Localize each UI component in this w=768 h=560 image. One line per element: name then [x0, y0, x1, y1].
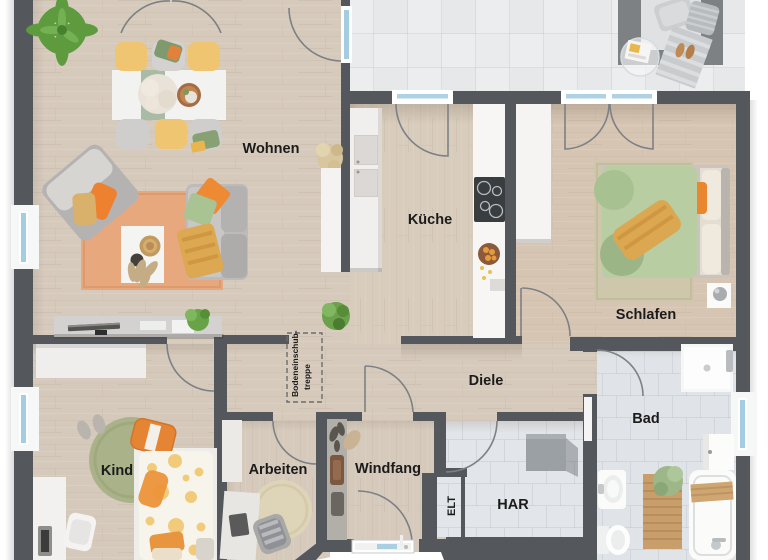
svg-text:Küche: Küche	[408, 212, 452, 228]
svg-text:Schlafen: Schlafen	[616, 307, 676, 323]
svg-text:ELT: ELT	[446, 496, 458, 516]
svg-text:HAR: HAR	[497, 497, 529, 513]
svg-text:treppe: treppe	[302, 364, 312, 390]
svg-text:Kind: Kind	[101, 463, 133, 479]
svg-text:Wohnen: Wohnen	[243, 141, 300, 157]
svg-text:Windfang: Windfang	[355, 461, 421, 477]
svg-text:Bodeneinschub-: Bodeneinschub-	[290, 330, 300, 397]
svg-text:Diele: Diele	[469, 373, 504, 389]
svg-text:Bad: Bad	[632, 411, 659, 427]
svg-text:Arbeiten: Arbeiten	[249, 462, 308, 478]
